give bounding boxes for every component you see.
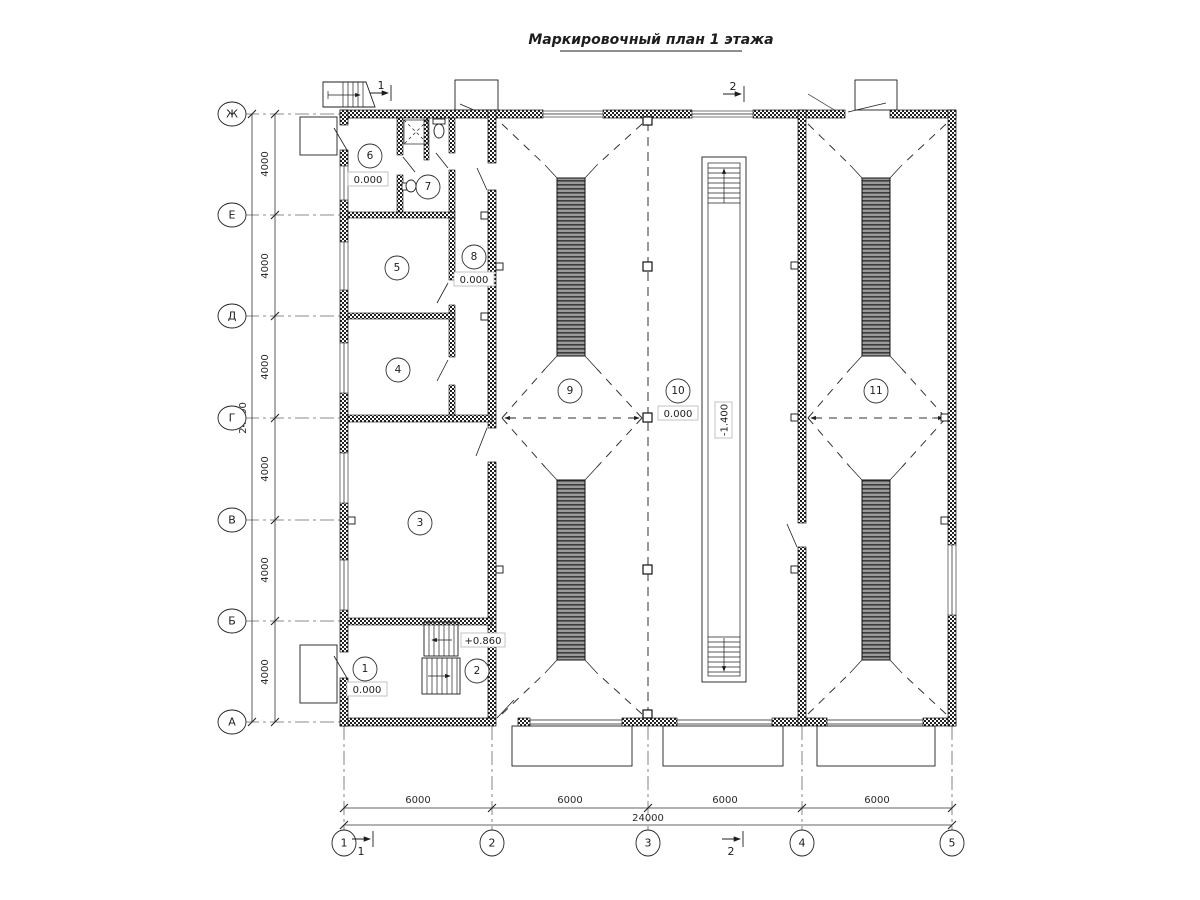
room-10-label: 10 0.000 bbox=[658, 379, 698, 420]
axis4-wall bbox=[791, 110, 806, 726]
svg-text:1: 1 bbox=[362, 663, 369, 675]
svg-text:10: 10 bbox=[671, 385, 684, 397]
axis-col-1: 1 bbox=[341, 837, 348, 850]
internal-staircase bbox=[422, 622, 460, 694]
svg-text:4: 4 bbox=[395, 364, 402, 376]
axis-bubbles-bottom: 1 2 3 4 5 bbox=[332, 830, 964, 856]
dim-4000-4: 4000 bbox=[260, 456, 271, 481]
dim-6000-2: 6000 bbox=[557, 795, 582, 806]
room-11-label: 11 bbox=[864, 379, 888, 403]
svg-text:8: 8 bbox=[471, 251, 478, 263]
svg-text:9: 9 bbox=[567, 385, 574, 397]
axis-col-4: 4 bbox=[799, 837, 806, 850]
svg-text:1: 1 bbox=[378, 79, 385, 92]
room-1-label: 1 0.000 bbox=[347, 657, 387, 696]
pit-elevation-label: -1.400 bbox=[720, 404, 731, 436]
exterior-porch-top bbox=[300, 117, 337, 155]
axis-row-Д: Д bbox=[228, 310, 237, 323]
section-mark-2-top: 2 bbox=[723, 80, 744, 102]
svg-text:0.000: 0.000 bbox=[353, 685, 382, 696]
floor-plan-sheet: Маркировочный план 1 этажа 4000 4000 400… bbox=[0, 0, 1200, 900]
svg-text:+0.860: +0.860 bbox=[464, 636, 501, 647]
axis-bubbles-left: Ж Е Д Г В Б А bbox=[218, 102, 246, 734]
svg-text:6: 6 bbox=[367, 150, 374, 162]
exterior-entrance-stair bbox=[323, 82, 375, 107]
room-6-label: 6 0.000 bbox=[348, 144, 388, 186]
section-mark-2-bottom: 2 bbox=[722, 831, 743, 858]
svg-text:2: 2 bbox=[474, 665, 481, 677]
room-3-label: 3 bbox=[408, 511, 432, 535]
sink-icon bbox=[402, 180, 416, 192]
room-9-label: 9 bbox=[558, 379, 582, 403]
svg-text:0.000: 0.000 bbox=[354, 175, 383, 186]
svg-text:11: 11 bbox=[869, 385, 882, 397]
axis-row-Б: Б bbox=[228, 615, 236, 628]
dim-4000-6: 4000 bbox=[260, 659, 271, 684]
hall11-roof-pattern bbox=[808, 124, 946, 714]
svg-text:2: 2 bbox=[728, 845, 735, 858]
dim-4000-3: 4000 bbox=[260, 354, 271, 379]
dim-4000-2: 4000 bbox=[260, 253, 271, 278]
svg-text:0.000: 0.000 bbox=[460, 275, 489, 286]
axis-row-Ж: Ж bbox=[226, 108, 238, 121]
axis-row-Г: Г bbox=[229, 412, 236, 425]
drawing-title: Маркировочный план 1 этажа bbox=[528, 32, 773, 51]
exterior-vestibule-top-right bbox=[808, 80, 897, 112]
dim-4000-5: 4000 bbox=[260, 557, 271, 582]
svg-text:1: 1 bbox=[358, 845, 365, 858]
room-4-label: 4 bbox=[386, 358, 410, 382]
axis2-wall bbox=[481, 110, 503, 718]
dim-6000-3: 6000 bbox=[712, 795, 737, 806]
axis-row-Е: Е bbox=[229, 209, 236, 222]
room-2-label: 2 +0.860 bbox=[461, 633, 505, 683]
loading-platforms-bottom bbox=[512, 726, 935, 766]
svg-text:7: 7 bbox=[425, 181, 432, 193]
axis-row-В: В bbox=[228, 514, 236, 527]
hall9-roof-pattern bbox=[502, 124, 642, 714]
svg-text:3: 3 bbox=[417, 517, 424, 529]
central-pit: -1.400 bbox=[702, 157, 746, 682]
axis-row-А: А bbox=[228, 716, 236, 729]
svg-text:5: 5 bbox=[394, 262, 401, 274]
axis-col-2: 2 bbox=[489, 837, 496, 850]
room-7-label: 7 bbox=[416, 175, 440, 199]
dim-6000-1: 6000 bbox=[405, 795, 430, 806]
room-5-label: 5 bbox=[385, 256, 409, 280]
exterior-porch-bottom bbox=[300, 645, 337, 703]
floor-plan-drawing: Маркировочный план 1 этажа 4000 4000 400… bbox=[0, 0, 1200, 900]
dim-24000-bottom: 24000 bbox=[632, 813, 664, 824]
axis-col-5: 5 bbox=[949, 837, 956, 850]
dim-6000-4: 6000 bbox=[864, 795, 889, 806]
title-text: Маркировочный план 1 этажа bbox=[528, 32, 773, 48]
dim-4000-1: 4000 bbox=[260, 151, 271, 176]
svg-text:2: 2 bbox=[730, 80, 737, 93]
section-mark-1-top: 1 bbox=[370, 79, 391, 101]
axis-col-3: 3 bbox=[645, 837, 652, 850]
section-marks: 1 2 1 2 bbox=[352, 79, 744, 858]
toilet-icon bbox=[433, 119, 445, 138]
svg-text:0.000: 0.000 bbox=[664, 409, 693, 420]
